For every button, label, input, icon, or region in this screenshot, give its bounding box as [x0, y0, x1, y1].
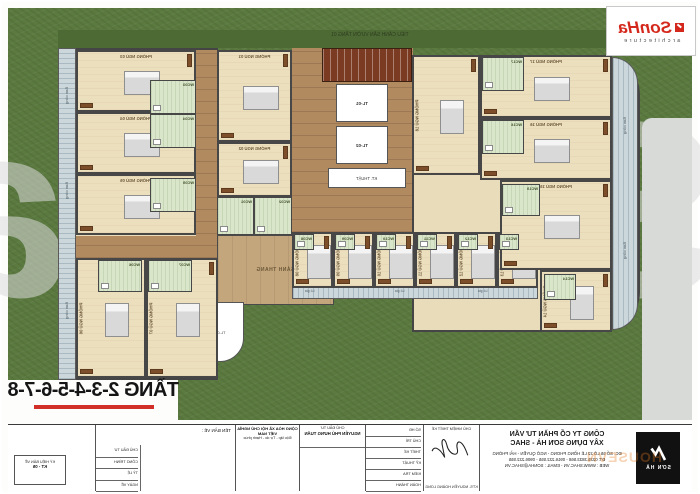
stair-core — [322, 48, 412, 82]
loggia-strip — [292, 286, 538, 299]
brand-subtitle: architecture — [622, 38, 681, 44]
stair-lobby-label: SẢNH THANG — [256, 267, 294, 273]
info-rows: CHỦ ĐẦU TƯCÔNG TRÌNHTỶ LỆNGÀY VẼ — [96, 445, 141, 491]
info-row: NGÀY VẼ — [96, 480, 138, 493]
title-underline — [34, 405, 154, 409]
client-name: NGUYỄN PHÚ HƯNG TUẤN — [300, 431, 365, 436]
signature-title: CHỦ NHIỆM THIẾT KẾ — [424, 427, 479, 431]
republic-cell: CỘNG HÒA XÃ HỘI CHỦ NGHĨA VIỆT NAM Độc l… — [236, 425, 300, 491]
roles-column: SỐ HĐCHỦ TRÌTHIẾT KẾKỸ THUẬTKIỂM TRAHOÀN… — [366, 425, 424, 491]
brand-logo-box: SonHa architecture — [606, 6, 696, 56]
floor-title: TẦNG 2-3-4-5-6-7-8 — [8, 379, 179, 402]
floor-plan-sheet: SonHa TIỂU CẢNH SÂN VƯỜN TẦNG 01 SẢNH TH… — [0, 0, 700, 494]
left-wing-outline — [58, 48, 218, 380]
elevator-1: TL-01 — [336, 84, 388, 122]
client-cell: CHỦ ĐẦU TƯ NGUYỄN PHÚ HƯNG TUẤN — [300, 425, 366, 491]
right-balcony-strip — [612, 57, 638, 330]
sheet-id-value: KT - 05 — [15, 464, 65, 469]
sheet-id-cell: KÝ HIỆU BẢN VẼ KT - 05 — [8, 425, 96, 491]
brand-logo-icon — [675, 23, 684, 32]
company-logo-text: SƠN HÀ — [645, 465, 671, 471]
brand-name: SonHa — [618, 19, 672, 36]
exterior-stair: TL-03 — [196, 302, 244, 362]
company-name-2: XÂY DỰNG SƠN HÀ - SHAC — [482, 440, 632, 449]
elevator-2: TL-02 — [336, 126, 388, 164]
signature-name: KTS. NGUYỄN HOÀNG LONG — [424, 485, 479, 489]
exterior-stair-label: TL-03 — [215, 330, 225, 335]
corridor-horizontal — [76, 236, 217, 258]
elevator-2-label: TL-02 — [356, 143, 368, 148]
technical-room: KT. THUẬT — [328, 168, 406, 188]
republic-line-1: CỘNG HÒA XÃ HỘI CHỦ NGHĨA VIỆT NAM — [236, 426, 299, 436]
drawing-name-cell: TÊN BẢN VẼ : CHỦ ĐẦU TƯCÔNG TRÌNHTỶ LỆNG… — [96, 425, 236, 491]
left-balcony-strip — [58, 48, 76, 380]
drawing-name-label: TÊN BẢN VẼ : — [96, 428, 231, 433]
signature-icon — [431, 433, 473, 463]
corridor-vertical — [196, 50, 217, 258]
photo-watermark: HOUSEVN — [586, 449, 662, 465]
signature-cell: CHỦ NHIỆM THIẾT KẾ KTS. NGUYỄN HOÀNG LON… — [424, 425, 480, 491]
role-row: HOÀN THÀNH — [366, 480, 421, 492]
elevator-1-label: TL-01 — [356, 101, 368, 106]
company-cell: SƠN HÀ CÔNG TY CỔ PHẦN TƯ VẤN XÂY DỰNG S… — [480, 425, 692, 491]
company-name-1: CÔNG TY CỔ PHẦN TƯ VẤN — [482, 431, 632, 440]
client-label: CHỦ ĐẦU TƯ — [300, 426, 365, 430]
republic-line-2: Độc lập - Tự do - Hạnh phúc — [236, 436, 299, 440]
technical-room-label: KT. THUẬT — [356, 176, 377, 181]
adjacent-building-footprint — [642, 118, 692, 420]
title-block: SƠN HÀ CÔNG TY CỔ PHẦN TƯ VẤN XÂY DỰNG S… — [8, 424, 692, 491]
garden-caption: TIỂU CẢNH SÂN VƯỜN TẦNG 01 — [280, 32, 460, 38]
